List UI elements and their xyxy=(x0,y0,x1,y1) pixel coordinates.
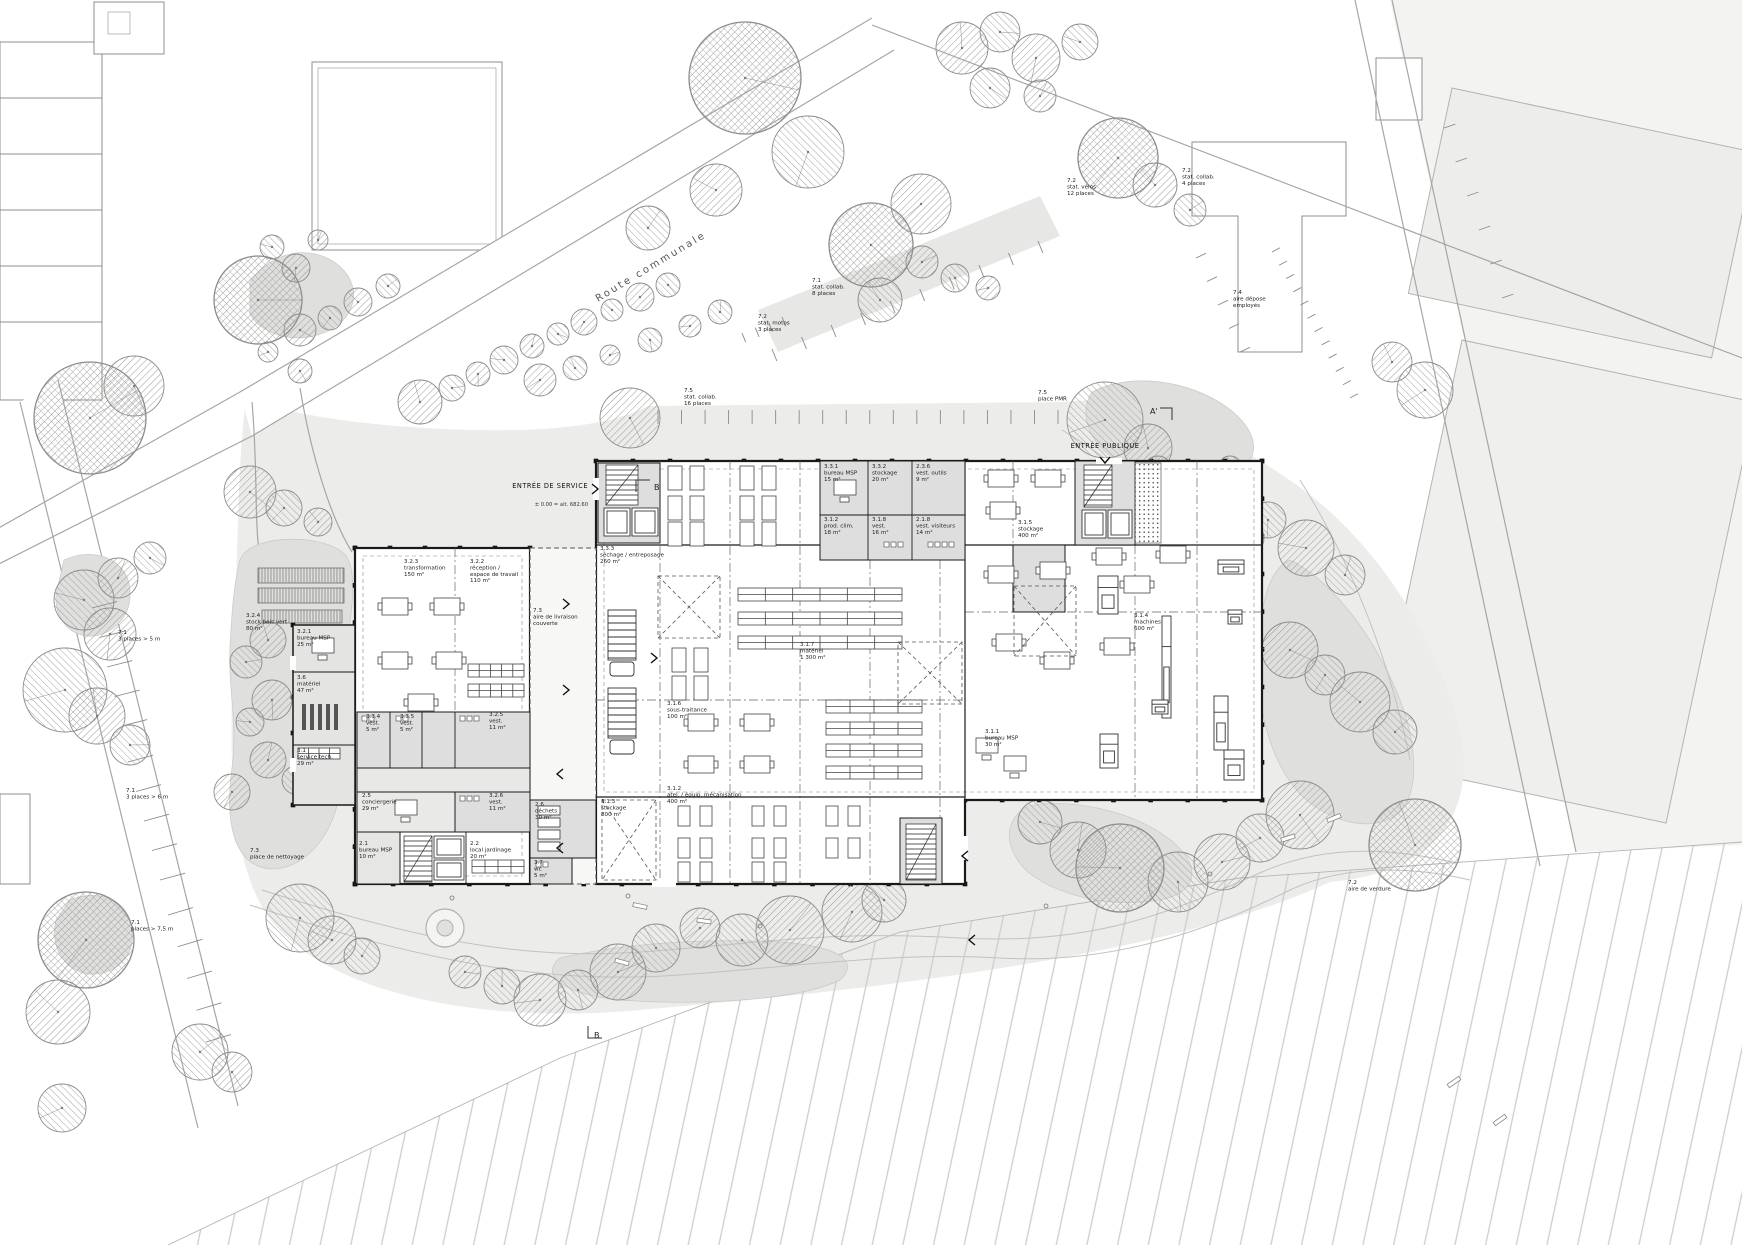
tree-icon xyxy=(1373,710,1417,754)
tree-icon xyxy=(600,345,620,365)
storage-rack xyxy=(738,612,902,625)
tree-icon xyxy=(1133,163,1177,207)
tree-icon xyxy=(708,300,732,324)
workbench xyxy=(684,714,718,731)
tree-icon xyxy=(680,908,720,948)
workbench xyxy=(740,756,774,773)
tree-icon xyxy=(288,359,312,383)
tree-icon xyxy=(1024,80,1056,112)
elevator xyxy=(604,508,630,536)
storage-rack xyxy=(826,766,922,779)
workbench xyxy=(684,756,718,773)
plan-annotation: B xyxy=(654,483,660,492)
tree-icon xyxy=(772,116,844,188)
storage-rack xyxy=(472,860,524,873)
workbench xyxy=(1092,548,1126,565)
tree-icon xyxy=(266,490,302,526)
tree-icon xyxy=(563,356,587,380)
workbench xyxy=(984,470,1018,487)
tree-icon xyxy=(590,944,646,1000)
tree-icon xyxy=(38,892,134,988)
storage-rack xyxy=(468,664,524,677)
elevator xyxy=(1082,510,1106,538)
tree-icon xyxy=(679,315,701,337)
machine xyxy=(1100,734,1118,768)
sanitary-fixture xyxy=(467,796,472,801)
workbench xyxy=(1031,470,1065,487)
workbench xyxy=(986,502,1020,519)
radiator xyxy=(334,704,338,730)
tree-icon xyxy=(626,283,654,311)
sanitary-fixture xyxy=(898,542,903,547)
turning-circle xyxy=(426,909,464,947)
room-label: 3.3.4vest.5 m² xyxy=(366,714,381,733)
tree-icon xyxy=(318,306,342,330)
sanitary-fixture xyxy=(891,542,896,547)
workbench xyxy=(430,598,464,615)
elevator xyxy=(434,860,464,880)
workbench xyxy=(432,652,466,669)
north-t-building xyxy=(1192,142,1346,352)
sanitary-fixture xyxy=(460,796,465,801)
plan-annotation: ENTRÉE DE SERVICE xyxy=(512,481,588,490)
tree-icon xyxy=(308,230,328,250)
workbench xyxy=(1156,546,1190,563)
tree-icon xyxy=(38,1084,86,1132)
plan-annotation: B xyxy=(594,1031,600,1040)
storage-rack xyxy=(468,684,524,697)
sanitary-fixture xyxy=(935,542,940,547)
southwest-small-building xyxy=(0,794,30,884)
tree-icon xyxy=(284,314,316,346)
tree-icon xyxy=(976,276,1000,300)
sanitary-fixture xyxy=(884,542,889,547)
tree-icon xyxy=(600,388,660,448)
radiator xyxy=(318,704,322,730)
tree-icon xyxy=(906,246,938,278)
workbench xyxy=(1036,562,1070,579)
tree-icon xyxy=(466,362,490,386)
tree-icon xyxy=(214,774,250,810)
workbench xyxy=(378,598,412,615)
tree-icon xyxy=(134,542,166,574)
tree-icon xyxy=(547,323,569,345)
tree-icon xyxy=(398,380,442,424)
waste-bin xyxy=(538,830,560,839)
stair xyxy=(404,836,432,882)
tree-icon xyxy=(891,174,951,234)
tree-icon xyxy=(282,254,310,282)
machine xyxy=(1218,560,1244,574)
tree-icon xyxy=(212,1052,252,1092)
tree-icon xyxy=(258,342,278,362)
tree-icon xyxy=(1174,194,1206,226)
tree-icon xyxy=(260,235,284,259)
workbench xyxy=(1100,638,1134,655)
sanitary-fixture xyxy=(460,716,465,721)
tree-icon xyxy=(524,364,556,396)
machine xyxy=(1214,696,1228,750)
tree-icon xyxy=(344,938,380,974)
tree-icon xyxy=(110,725,150,765)
tree-icon xyxy=(1012,34,1060,82)
stair xyxy=(606,465,638,505)
tree-icon xyxy=(1372,342,1412,382)
west-rowhouses xyxy=(0,2,164,400)
waste-bin xyxy=(538,842,560,851)
northwest-building xyxy=(312,62,502,250)
tree-icon xyxy=(656,273,680,297)
stair xyxy=(906,824,936,880)
plan-annotation: A' xyxy=(1150,407,1158,416)
plan-annotation: ± 0.00 = alt. 682.60 xyxy=(535,502,588,508)
storage-rack xyxy=(826,744,922,757)
storage-rack xyxy=(738,636,902,649)
site-area-label: 7.13 places > 5 m xyxy=(118,630,160,642)
sanitary-fixture xyxy=(942,542,947,547)
tree-icon xyxy=(1062,24,1098,60)
tree-icon xyxy=(26,980,90,1044)
tree-icon xyxy=(236,708,264,736)
plan-annotation: ENTRÉE PUBLIQUE xyxy=(1071,441,1140,450)
tree-icon xyxy=(344,288,372,316)
tree-icon xyxy=(484,968,520,1004)
tree-icon xyxy=(520,334,544,358)
site-area-label: 7.5stat. collab.16 places xyxy=(684,388,717,407)
tree-icon xyxy=(689,22,801,134)
tree-icon xyxy=(1325,555,1365,595)
tree-icon xyxy=(716,914,768,966)
tree-icon xyxy=(98,558,138,598)
tree-icon xyxy=(970,68,1010,108)
machine xyxy=(1098,576,1118,614)
tree-icon xyxy=(1018,800,1062,844)
tree-icon xyxy=(439,375,465,401)
tree-icon xyxy=(858,278,902,322)
sanitary-fixture xyxy=(467,716,472,721)
tree-icon xyxy=(250,742,286,778)
stair xyxy=(1084,465,1112,507)
site-plan: 3.3.3séchage / entreposage260 m²3.2.3tra… xyxy=(0,0,1742,1245)
tree-icon xyxy=(514,974,566,1026)
tree-icon xyxy=(626,206,670,250)
truck xyxy=(608,610,636,676)
tree-icon xyxy=(104,356,164,416)
tree-icon xyxy=(449,956,481,988)
truck xyxy=(608,688,636,754)
changing-rooms xyxy=(357,712,530,768)
site-area-label: 7.5place PMR xyxy=(1038,390,1067,402)
sanitary-fixture xyxy=(543,862,548,867)
tree-icon xyxy=(304,508,332,536)
tree-icon xyxy=(376,274,400,298)
room-label: 3.3.5vest.5 m² xyxy=(400,714,415,733)
storage-rack xyxy=(738,588,902,601)
sanitary-fixture xyxy=(474,716,479,721)
tree-icon xyxy=(1369,799,1461,891)
small-north-building xyxy=(1376,58,1422,120)
workbench xyxy=(1040,652,1074,669)
sanitary-fixture xyxy=(928,542,933,547)
tree-icon xyxy=(1278,520,1334,576)
workbench xyxy=(740,714,774,731)
storage-rack xyxy=(826,700,922,713)
machine xyxy=(1224,750,1244,780)
workbench xyxy=(1120,576,1154,593)
machine xyxy=(1228,610,1242,624)
sanitary-fixture xyxy=(474,796,479,801)
radiator xyxy=(310,704,314,730)
sanitary-fixture xyxy=(949,542,954,547)
radiator xyxy=(302,704,306,730)
elevator xyxy=(434,836,464,858)
storage-rack xyxy=(826,722,922,735)
tree-icon xyxy=(601,299,623,321)
machine xyxy=(1152,700,1168,714)
tree-icon xyxy=(980,12,1020,52)
tree-icon xyxy=(571,309,597,335)
tree-icon xyxy=(490,346,518,374)
workbench xyxy=(992,634,1026,651)
entry-mat xyxy=(1135,463,1161,543)
elevator xyxy=(632,508,658,536)
radiator xyxy=(326,704,330,730)
tree-icon xyxy=(230,646,262,678)
site-plan-drawing: 3.3.3séchage / entreposage260 m²3.2.3tra… xyxy=(0,0,1742,1245)
elevator xyxy=(1108,510,1132,538)
tree-icon xyxy=(941,264,969,292)
log-stacks xyxy=(258,568,344,623)
tree-icon xyxy=(690,164,742,216)
tree-icon xyxy=(638,328,662,352)
workbench xyxy=(378,652,412,669)
corridor xyxy=(357,768,530,792)
workbench xyxy=(984,566,1018,583)
workbench xyxy=(404,694,438,711)
